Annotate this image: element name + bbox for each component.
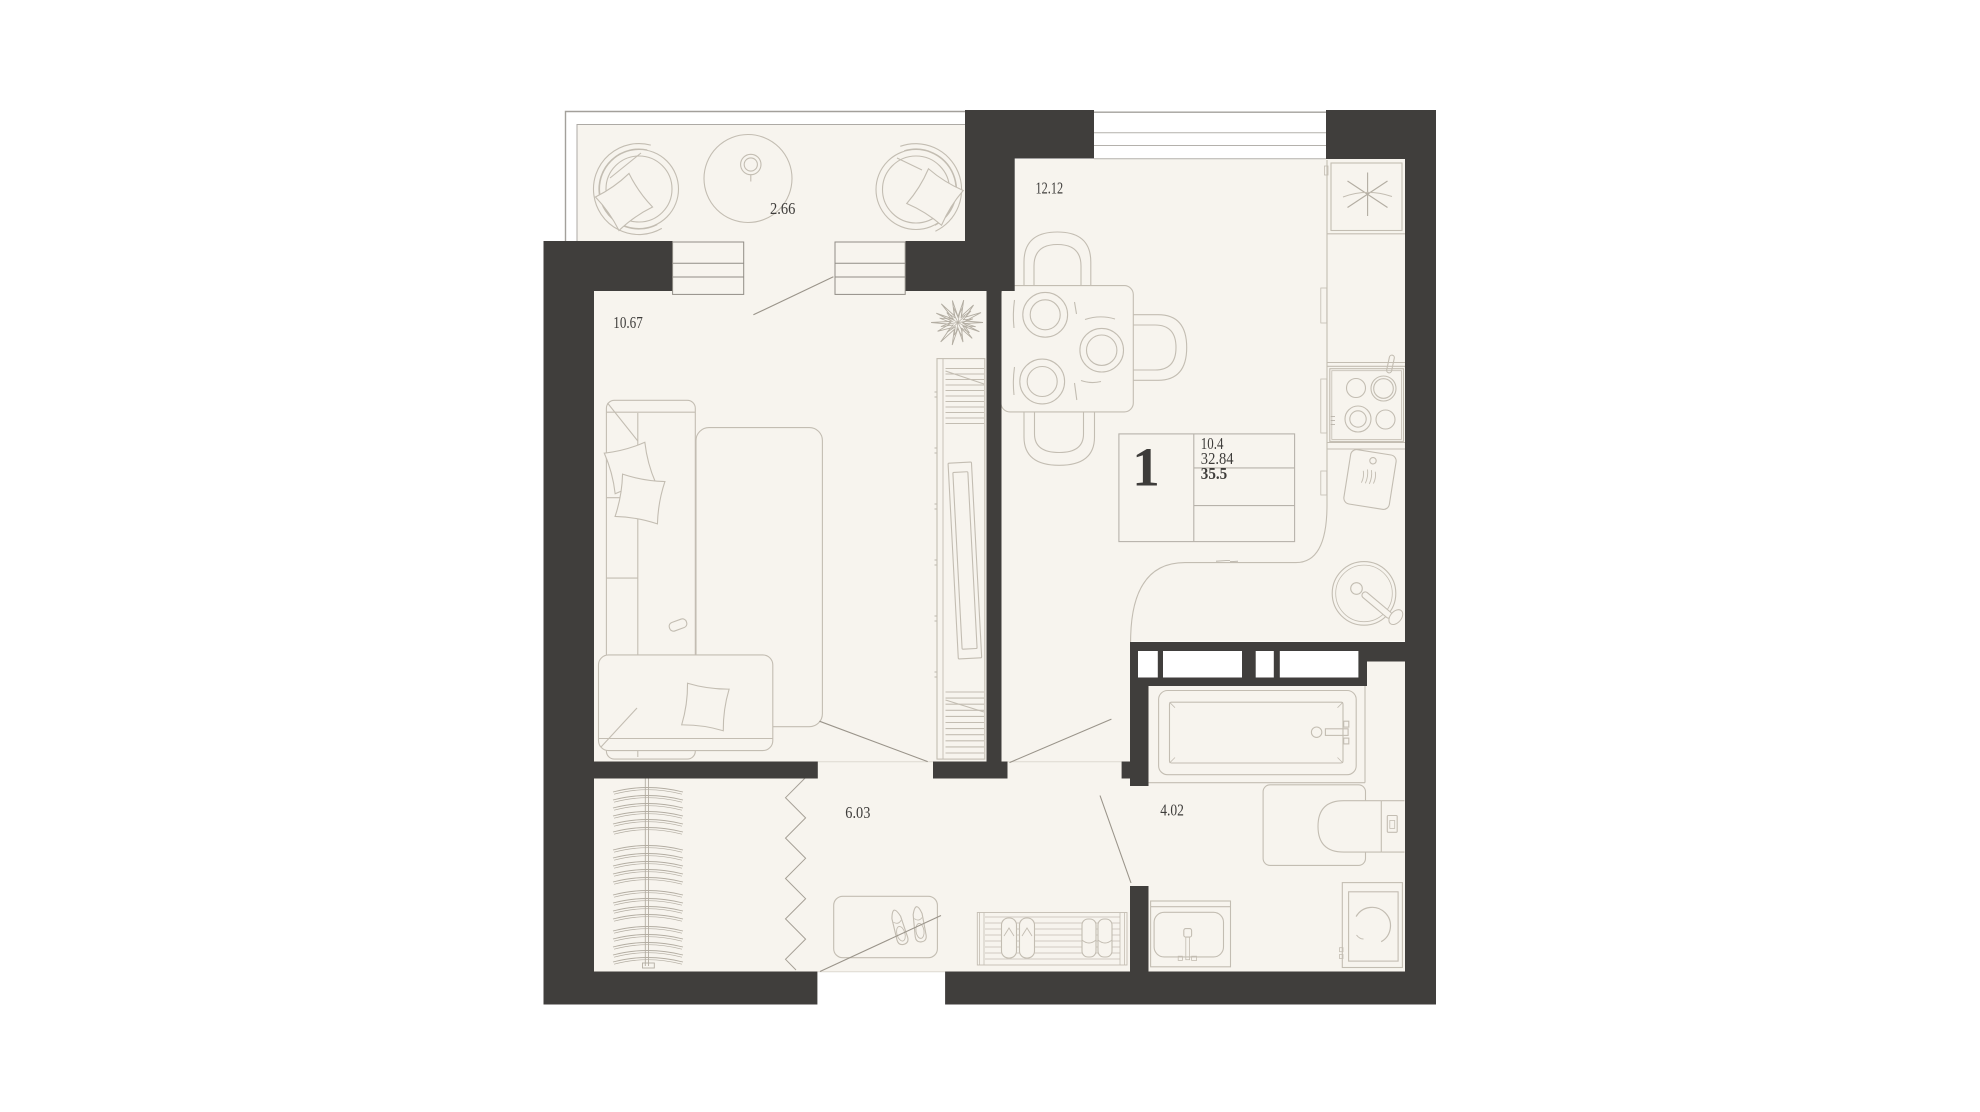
svg-text:12.12: 12.12 xyxy=(1036,179,1064,198)
svg-text:10.67: 10.67 xyxy=(613,313,643,332)
svg-text:4.02: 4.02 xyxy=(1160,800,1184,819)
svg-text:2.66: 2.66 xyxy=(770,199,795,218)
svg-text:6.03: 6.03 xyxy=(845,803,870,822)
svg-text:35.5: 35.5 xyxy=(1201,464,1227,483)
svg-text:1: 1 xyxy=(1132,437,1160,498)
